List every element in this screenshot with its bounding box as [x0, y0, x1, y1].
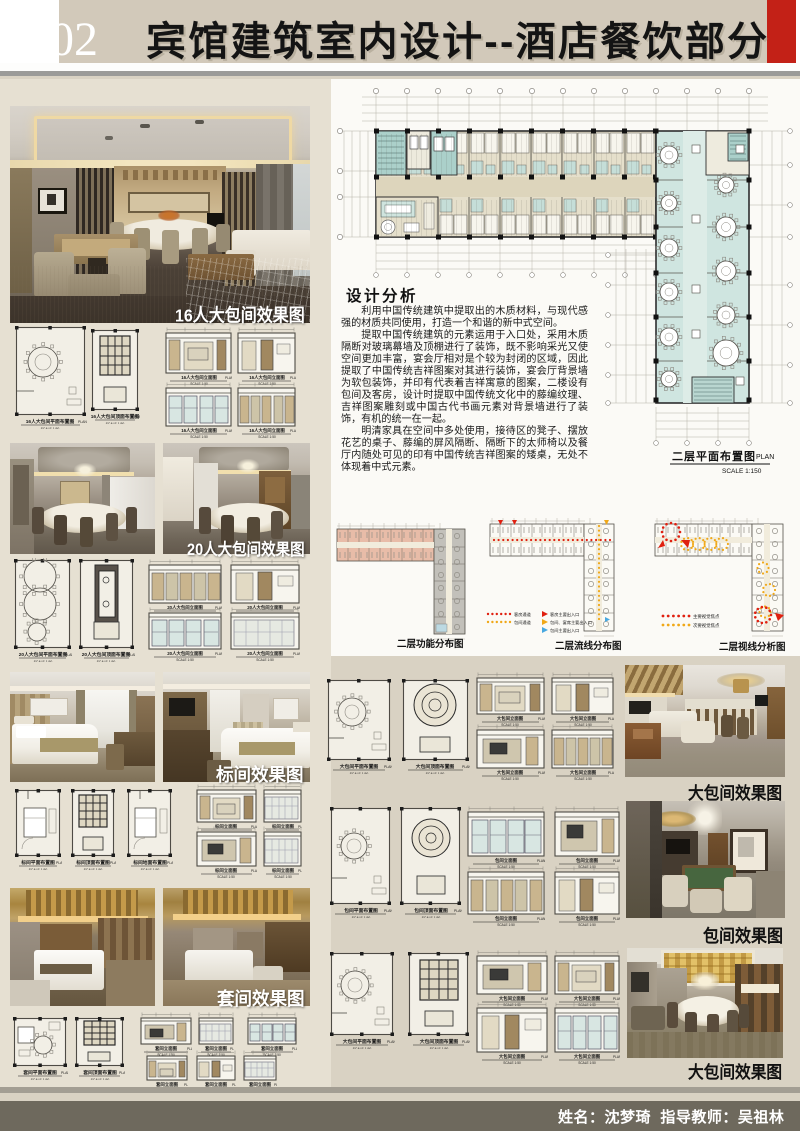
svg-text:包间平面布置图: 包间平面布置图	[343, 907, 378, 914]
svg-text:客房通道: 客房通道	[514, 611, 532, 618]
svg-text:PLAN: PLAN	[290, 376, 296, 380]
svg-text:包间主要出入口: 包间主要出入口	[550, 627, 579, 634]
svg-text:大包间平面布置图: 大包间平面布置图	[340, 763, 379, 770]
svg-text:大包间立面图: 大包间立面图	[570, 715, 597, 722]
svg-text:PLAN: PLAN	[541, 997, 548, 1001]
svg-text:PLAN: PLAN	[215, 652, 222, 656]
svg-text:PLAN: PLAN	[613, 917, 620, 921]
svg-text:SCALE 1:50: SCALE 1:50	[31, 1078, 50, 1080]
svg-text:SCALE 1:50: SCALE 1:50	[353, 1047, 372, 1049]
svg-text:PLAN: PLAN	[756, 454, 774, 461]
svg-text:SCALE 1:50: SCALE 1:50	[352, 916, 371, 918]
svg-text:SCALE 1:50: SCALE 1:50	[574, 777, 592, 780]
svg-text:SCALE 1:50: SCALE 1:50	[217, 875, 235, 878]
svg-text:大包间平面布置图: 大包间平面布置图	[343, 1038, 382, 1045]
svg-text:SCALE 1:50: SCALE 1:50	[430, 1047, 449, 1049]
svg-text:PLAN: PLAN	[292, 1047, 297, 1051]
svg-text:PLAN: PLAN	[110, 861, 116, 865]
svg-text:PLAN: PLAN	[293, 652, 300, 656]
svg-text:PLAN: PLAN	[290, 429, 296, 433]
svg-text:SCALE 1:50: SCALE 1:50	[176, 658, 194, 661]
svg-text:包间立面图: 包间立面图	[494, 857, 518, 864]
svg-text:PLAN: PLAN	[65, 653, 72, 657]
svg-text:16人大包间立面图: 16人大包间立面图	[249, 427, 285, 434]
svg-text:SCALE 1:50: SCALE 1:50	[29, 868, 48, 870]
svg-text:PLAN: PLAN	[462, 765, 470, 769]
svg-text:标间地面布置图: 标间地面布置图	[132, 859, 167, 866]
svg-text:SCALE 1:150: SCALE 1:150	[722, 468, 762, 475]
svg-text:PLAN: PLAN	[537, 917, 545, 921]
svg-text:PLAN: PLAN	[56, 861, 62, 865]
svg-text:SCALE 1:50: SCALE 1:50	[34, 660, 53, 662]
svg-text:SCALE 1:50: SCALE 1:50	[426, 772, 445, 774]
svg-text:SCALE 1:50: SCALE 1:50	[91, 1078, 110, 1080]
svg-text:大包间立面图: 大包间立面图	[499, 1053, 526, 1060]
svg-text:主要视觉焦点: 主要视觉焦点	[693, 613, 720, 620]
svg-text:20人大包间顶面布置图: 20人大包间顶面布置图	[82, 651, 131, 658]
svg-text:大包间顶面布置图: 大包间顶面布置图	[416, 763, 455, 770]
svg-text:SCALE 1:50: SCALE 1:50	[106, 422, 125, 424]
svg-text:大包间立面图: 大包间立面图	[574, 1053, 601, 1060]
svg-text:PLAN: PLAN	[538, 717, 545, 721]
svg-text:PLAN: PLAN	[134, 415, 140, 419]
svg-text:标间平面布置图: 标间平面布置图	[20, 859, 55, 866]
svg-text:SCALE 1:50: SCALE 1:50	[501, 777, 519, 780]
svg-text:次要视觉焦点: 次要视觉焦点	[693, 622, 720, 629]
svg-text:大包间顶面布置图: 大包间顶面布置图	[420, 1038, 459, 1045]
svg-text:PLAN: PLAN	[454, 909, 462, 913]
svg-text:套间平面布置图: 套间平面布置图	[23, 1069, 57, 1076]
svg-text:SCALE 1:50: SCALE 1:50	[422, 916, 441, 918]
svg-text:PLAN: PLAN	[225, 429, 232, 433]
svg-text:PLAN: PLAN	[167, 861, 173, 865]
svg-text:PLAN: PLAN	[613, 1055, 620, 1059]
svg-text:16人大包间顶面布置图: 16人大包间顶面布置图	[91, 413, 140, 420]
svg-text:PLAN: PLAN	[462, 1040, 470, 1044]
svg-text:SCALE 1:50: SCALE 1:50	[258, 435, 276, 438]
svg-text:标间立面图: 标间立面图	[271, 867, 295, 874]
svg-text:PLAN: PLAN	[541, 1055, 548, 1059]
svg-text:16人大包间平面布置图: 16人大包间平面布置图	[26, 418, 75, 425]
svg-text:SCALE 1:50: SCALE 1:50	[578, 1061, 596, 1064]
svg-text:16人大包间立面图: 16人大包间立面图	[181, 374, 217, 381]
svg-text:16人大包间立面图: 16人大包间立面图	[249, 374, 285, 381]
svg-text:大包间立面图: 大包间立面图	[570, 769, 597, 776]
svg-text:PLAN: PLAN	[608, 717, 614, 721]
svg-text:套间顶面布置图: 套间顶面布置图	[83, 1069, 117, 1076]
svg-text:二层平面布置图: 二层平面布置图	[672, 449, 756, 463]
svg-text:大包间立面图: 大包间立面图	[497, 769, 524, 776]
svg-text:标间立面图: 标间立面图	[214, 867, 238, 874]
svg-text:PLAN: PLAN	[608, 771, 614, 775]
svg-text:PLAN: PLAN	[78, 420, 87, 424]
svg-text:包间、宴席主要出入口: 包间、宴席主要出入口	[550, 619, 592, 626]
svg-text:PLAN: PLAN	[61, 1071, 68, 1075]
svg-text:SCALE 1:50: SCALE 1:50	[41, 427, 60, 429]
svg-text:包间顶面布置图: 包间顶面布置图	[413, 907, 448, 914]
svg-text:标间顶面布置图: 标间顶面布置图	[75, 859, 110, 866]
svg-text:大包间立面图: 大包间立面图	[499, 995, 526, 1002]
svg-text:20人大包间立面图: 20人大包间立面图	[247, 650, 283, 657]
svg-text:PLAN: PLAN	[225, 376, 232, 380]
svg-text:SCALE 1:50: SCALE 1:50	[578, 923, 596, 926]
svg-text:包间立面图: 包间立面图	[575, 857, 599, 864]
svg-text:SCALE 1:50: SCALE 1:50	[84, 868, 103, 870]
svg-text:SCALE 1:50: SCALE 1:50	[350, 772, 369, 774]
svg-text:PLAN: PLAN	[387, 1040, 395, 1044]
svg-text:大包间立面图: 大包间立面图	[574, 995, 601, 1002]
svg-text:SCALE 1:50: SCALE 1:50	[97, 660, 116, 662]
svg-text:PLAN: PLAN	[251, 869, 257, 873]
svg-text:PLAN: PLAN	[538, 771, 545, 775]
svg-text:PLAN: PLAN	[613, 997, 620, 1001]
svg-text:PLAN: PLAN	[613, 859, 620, 863]
svg-text:包间立面图: 包间立面图	[575, 915, 599, 922]
svg-text:PLAN: PLAN	[384, 765, 392, 769]
svg-text:PLAN: PLAN	[119, 1071, 125, 1075]
svg-text:包间通道: 包间通道	[514, 619, 532, 626]
svg-text:PLAN: PLAN	[128, 653, 135, 657]
svg-text:大包间立面图: 大包间立面图	[497, 715, 524, 722]
svg-text:16人大包间立面图: 16人大包间立面图	[181, 427, 217, 434]
svg-text:SCALE 1:50: SCALE 1:50	[497, 923, 515, 926]
svg-text:20人大包间平面布置图: 20人大包间平面布置图	[19, 651, 68, 658]
svg-text:客房主要出入口: 客房主要出入口	[550, 611, 579, 618]
svg-text:SCALE 1:50: SCALE 1:50	[274, 875, 292, 878]
svg-text:包间立面图: 包间立面图	[494, 915, 518, 922]
svg-text:20人大包间立面图: 20人大包间立面图	[167, 650, 203, 657]
svg-text:SCALE 1:50: SCALE 1:50	[256, 658, 274, 661]
svg-text:PLAN: PLAN	[384, 909, 392, 913]
svg-text:PLAN: PLAN	[298, 869, 302, 873]
svg-text:SCALE 1:50: SCALE 1:50	[503, 1061, 521, 1064]
svg-text:SCALE 1:50: SCALE 1:50	[141, 868, 160, 870]
svg-text:PLAN: PLAN	[537, 859, 545, 863]
svg-text:SCALE 1:50: SCALE 1:50	[190, 435, 208, 438]
